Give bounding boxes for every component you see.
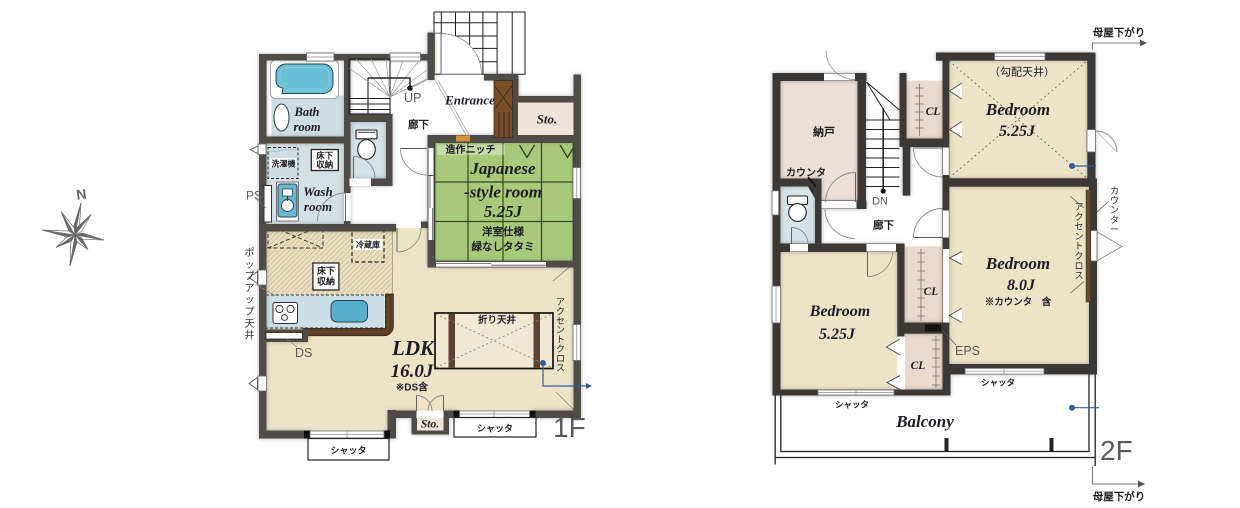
svg-text:Bath: Bath (293, 105, 319, 119)
svg-text:Bedroom: Bedroom (985, 254, 1050, 273)
svg-text:16.0J: 16.0J (391, 361, 434, 382)
svg-text:シャッタ: シャッタ (330, 445, 366, 456)
svg-text:※DS含: ※DS含 (396, 381, 429, 394)
svg-text:冷蔵庫: 冷蔵庫 (356, 240, 380, 250)
svg-text:折り天井: 折り天井 (478, 314, 517, 326)
svg-text:Wash: Wash (303, 184, 332, 199)
svg-text:UP: UP (404, 91, 421, 105)
svg-text:5.25J: 5.25J (484, 202, 523, 221)
svg-text:5.25J: 5.25J (999, 123, 1036, 140)
svg-text:Sto.: Sto. (537, 112, 558, 127)
svg-text:-style room: -style room (464, 183, 542, 202)
svg-text:room: room (293, 120, 320, 134)
svg-text:※カウンタ 含: ※カウンタ 含 (985, 296, 1052, 308)
svg-text:カウンター: カウンター (1110, 186, 1119, 234)
svg-text:洋室仕様: 洋室仕様 (482, 225, 524, 238)
svg-text:2F: 2F (1100, 435, 1133, 466)
svg-text:（勾配天井）: （勾配天井） (989, 65, 1055, 79)
svg-text:母屋下がり: 母屋下がり (1093, 26, 1146, 39)
svg-text:洗濯機: 洗濯機 (272, 159, 296, 169)
svg-text:DN: DN (872, 196, 888, 208)
svg-text:アクセントクロス: アクセントクロス (1074, 202, 1083, 281)
svg-text:Japanese: Japanese (469, 159, 536, 178)
svg-text:母屋下がり: 母屋下がり (1093, 490, 1146, 503)
svg-text:LDK: LDK (391, 336, 436, 360)
svg-text:CL: CL (924, 286, 939, 298)
svg-text:ポップアップ天井: ポップアップ天井 (245, 247, 255, 342)
svg-text:シャッタ: シャッタ (835, 400, 869, 410)
svg-text:納戸: 納戸 (813, 125, 835, 139)
svg-text:床下: 床下 (317, 265, 335, 276)
svg-text:Sto.: Sto. (421, 419, 439, 431)
svg-text:緑なしタタミ: 緑なしタタミ (472, 240, 535, 253)
svg-text:room: room (304, 199, 332, 214)
svg-text:収納: 収納 (316, 160, 333, 170)
svg-text:Balcony: Balcony (895, 412, 954, 431)
svg-text:PS: PS (246, 189, 262, 203)
svg-text:Bedroom: Bedroom (809, 303, 870, 320)
svg-text:造作ニッチ: 造作ニッチ (446, 143, 496, 156)
svg-text:8.0J: 8.0J (1007, 277, 1036, 294)
svg-text:Bedroom: Bedroom (985, 100, 1050, 119)
svg-text:廊下: 廊下 (408, 118, 429, 131)
svg-text:カウンタ: カウンタ (786, 167, 826, 179)
svg-text:廊下: 廊下 (873, 219, 894, 232)
svg-text:Entrance: Entrance (444, 93, 495, 108)
svg-text:収納: 収納 (317, 276, 335, 287)
svg-text:5.25J: 5.25J (819, 326, 856, 343)
svg-text:アクセントクロス: アクセントクロス (556, 297, 565, 373)
svg-text:1F: 1F (553, 412, 586, 443)
svg-text:DS: DS (295, 346, 312, 360)
svg-text:シャッタ: シャッタ (981, 378, 1015, 388)
svg-text:CL: CL (926, 106, 941, 118)
svg-text:CL: CL (911, 360, 926, 372)
svg-text:シャッタ: シャッタ (477, 423, 513, 434)
svg-text:EPS: EPS (955, 344, 980, 358)
